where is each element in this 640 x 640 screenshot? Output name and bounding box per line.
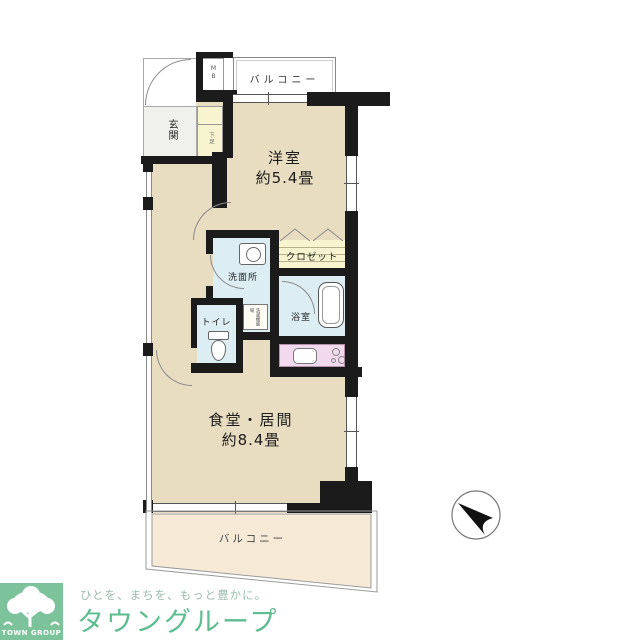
closet-label: クロゼット (279, 249, 345, 263)
wall-segment (143, 343, 153, 356)
wall-segment (143, 162, 153, 172)
stove-burner-icon (331, 358, 336, 363)
toilet-label: トイレ (197, 315, 236, 328)
laundry-box: 洗濯機置場 (243, 304, 268, 330)
bathroom-label: 浴室 (281, 310, 321, 323)
shoe-cabinet-top-cell (198, 107, 222, 125)
closet-folding-door-icon (279, 228, 345, 242)
wall-segment (191, 363, 243, 373)
closet-shelf-line (279, 247, 345, 248)
wall-segment (206, 238, 213, 254)
wall-segment (270, 268, 358, 276)
western-room-name: 洋室 (222, 148, 348, 168)
stove-burner-icon (332, 348, 340, 356)
compass-icon (445, 485, 515, 555)
town-group-logo: TOWN GROUP (0, 583, 63, 640)
kitchen-counter (279, 344, 345, 367)
meter-box: MB (202, 58, 224, 94)
room-closet: クロゼット (279, 240, 345, 268)
left-exterior-wall (146, 162, 152, 513)
balcony-bottom-label: バルコニー (180, 531, 325, 546)
wall-segment (143, 197, 153, 210)
wall-segment (270, 230, 279, 377)
kitchen-sink-icon (293, 348, 317, 364)
bathtub-icon (318, 282, 344, 328)
tree-icon (0, 585, 63, 629)
laundry-label: 洗濯機置場 (248, 308, 260, 326)
washroom-label: 洗面所 (216, 270, 270, 283)
western-room-label-block: 洋室 約5.4畳 (222, 148, 348, 189)
living-dining-label-block: 食堂・居間 約8.4畳 (150, 410, 352, 451)
shoe-cabinet-label: 下足 (207, 132, 215, 145)
room-balcony-bottom (140, 500, 385, 600)
window-tick (268, 92, 269, 105)
washroom-sink-bowl (246, 247, 261, 262)
washroom-sink-icon (239, 243, 266, 265)
wall-segment (196, 52, 233, 58)
entrance-label: 玄関 (164, 119, 179, 141)
room-entrance: 玄関 (143, 106, 197, 158)
logo-caption: TOWN GROUP (0, 629, 63, 637)
brand-company-name: タウングループ (77, 600, 278, 639)
living-dining-area: 約8.4畳 (150, 430, 352, 450)
wall-segment (270, 367, 362, 377)
toilet-icon (208, 331, 229, 340)
western-room-area: 約5.4畳 (222, 168, 348, 188)
floor-plan: バルコニー MB 玄関 下足 洗濯機置場 クロゼット (0, 0, 640, 640)
wall-segment (270, 336, 358, 344)
living-dining-name: 食堂・居間 (150, 410, 352, 430)
meter-box-label: MB (210, 65, 217, 81)
wall-segment (238, 332, 271, 340)
balcony-top-label: バルコニー (234, 71, 335, 86)
laundry-space: 洗濯機置場 (241, 302, 270, 332)
window (233, 94, 307, 103)
shoe-cabinet: 下足 (197, 106, 223, 158)
bathtub-inner-line (322, 286, 340, 324)
